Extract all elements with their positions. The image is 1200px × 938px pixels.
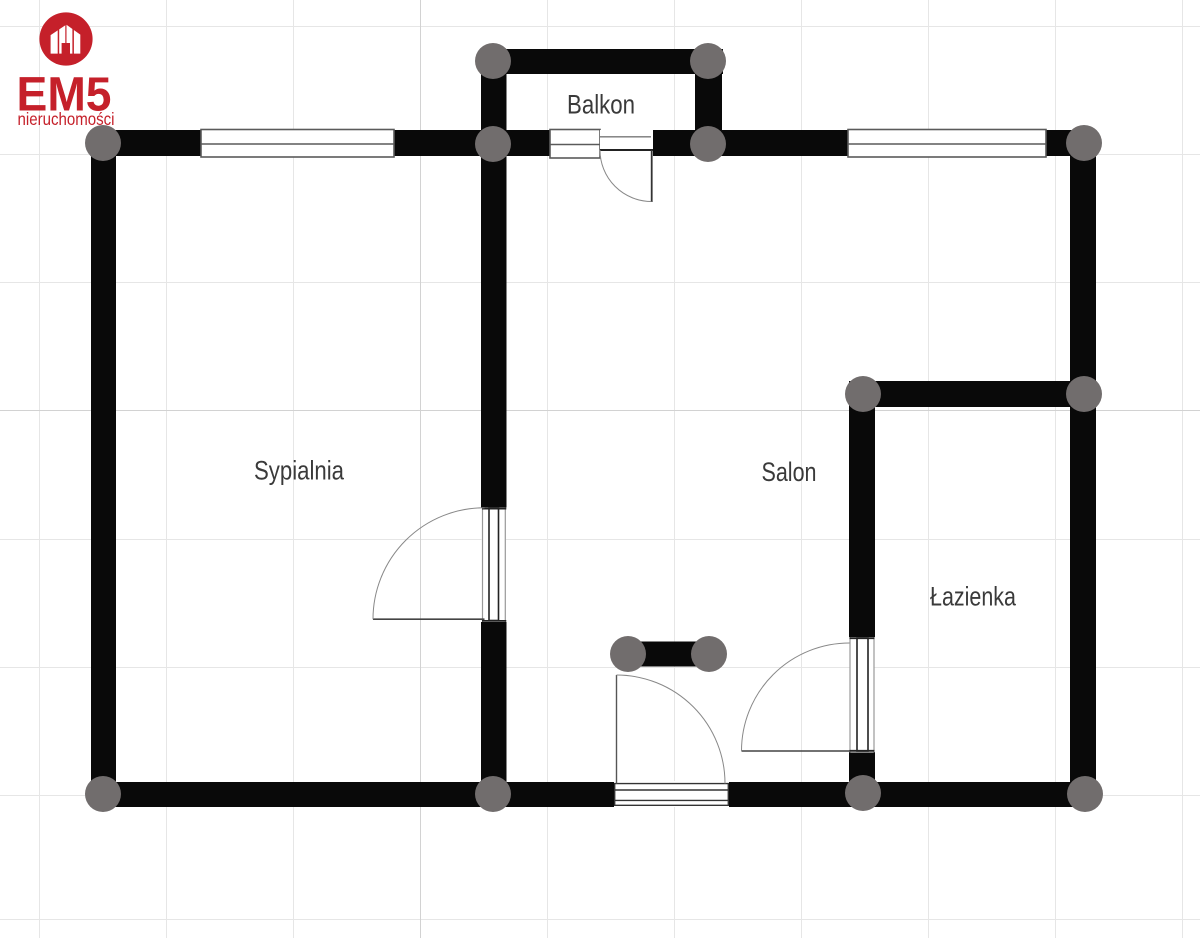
svg-text:Sypialnia: Sypialnia (254, 456, 345, 486)
svg-text:Łazienka: Łazienka (930, 582, 1017, 612)
svg-text:Balkon: Balkon (567, 90, 635, 120)
svg-text:Salon: Salon (762, 457, 817, 487)
